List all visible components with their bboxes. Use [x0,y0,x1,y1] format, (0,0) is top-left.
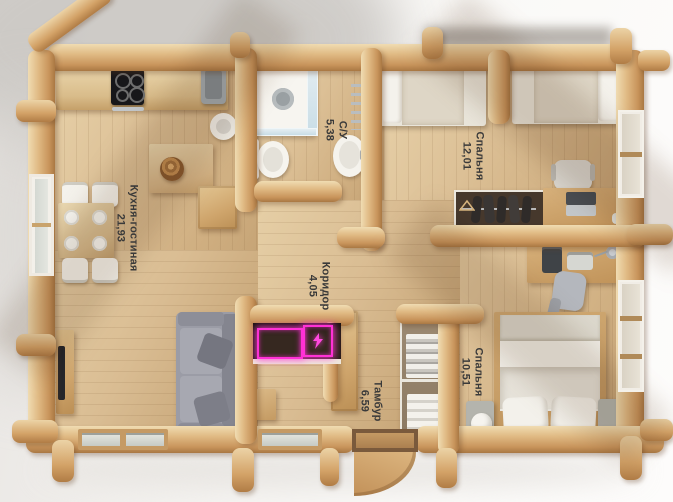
room-label-bathroom: С/У 5,38 [324,119,349,141]
window-mullion [620,354,642,359]
pc-tower [542,246,562,273]
clothes-hanger [496,196,507,224]
room-area: 21,93 [115,214,128,243]
window-mullion [32,223,51,227]
window-bottom-vestibule [258,429,322,450]
window-bottom-living [78,429,168,450]
room-name: Спальня [473,132,486,181]
log-end [638,50,670,71]
window-glass [622,284,640,388]
room-name: Кухня-гостиная [127,184,140,271]
room-label-vestibule: Тамбур 6,59 [359,380,384,421]
wall-bathroom-south [254,181,342,202]
room-area: 4,05 [307,275,320,297]
window-right-bedroom2 [618,280,644,392]
window-glass [82,433,120,446]
room-name: Спальня [472,348,485,397]
log-end [52,440,74,482]
window-glass [126,433,164,446]
niche-shelf [253,359,341,364]
window-mullion [620,316,642,321]
log-end [12,420,58,443]
room-name: Тамбур [371,380,384,421]
room-area: 10,51 [460,358,473,387]
log-end [16,100,56,122]
electric-panel-box [303,325,333,357]
room-label-kitchen-living: Кухня-гостиная 21,93 [115,184,140,271]
window-right-bedroom1 [618,110,644,198]
burner [115,73,131,89]
wooden-hanger-icon [459,199,475,211]
room-area: 5,38 [324,119,337,141]
kitchen-cabinet [198,186,237,229]
room-area: 6,59 [359,390,372,412]
toilet-seat [263,147,283,172]
washbasin-bowl [339,141,360,169]
floor-plan-scene: Кухня-гостиная 21,93 С/У 5,38 Спальня 12… [0,0,673,502]
oven-handle [112,107,144,111]
room-name: С/У [336,121,349,139]
lightning-icon [311,333,325,349]
room-label-corridor: Коридор 4,05 [307,262,332,311]
room-area: 12,01 [461,142,474,171]
bed-pillow [383,67,402,123]
room-label-bedroom-2: Спальня 10,51 [460,348,485,397]
burner [130,74,144,88]
house-drop-shadow [40,450,640,490]
wall-bathroom-bedroom1 [361,48,382,251]
printer [567,252,593,270]
sofa-armrest [178,312,224,326]
wall-vestibule-bedroom2 [438,304,459,455]
log-end [232,448,254,492]
room-name: Коридор [319,262,332,311]
log-end [610,28,632,64]
log-end [320,448,339,486]
wall-end-cross [337,227,385,248]
window-left [29,174,54,276]
window-glass [262,433,318,446]
electric-panel-outline [257,328,303,359]
log-end [436,448,457,488]
burner [116,89,129,102]
room-label-bedroom-1: Спальня 12,01 [461,132,486,181]
door-step [356,433,414,448]
laptop-keyboard [566,205,596,216]
window-mullion [620,152,642,157]
burner [129,87,145,103]
shower-drain [272,88,294,110]
